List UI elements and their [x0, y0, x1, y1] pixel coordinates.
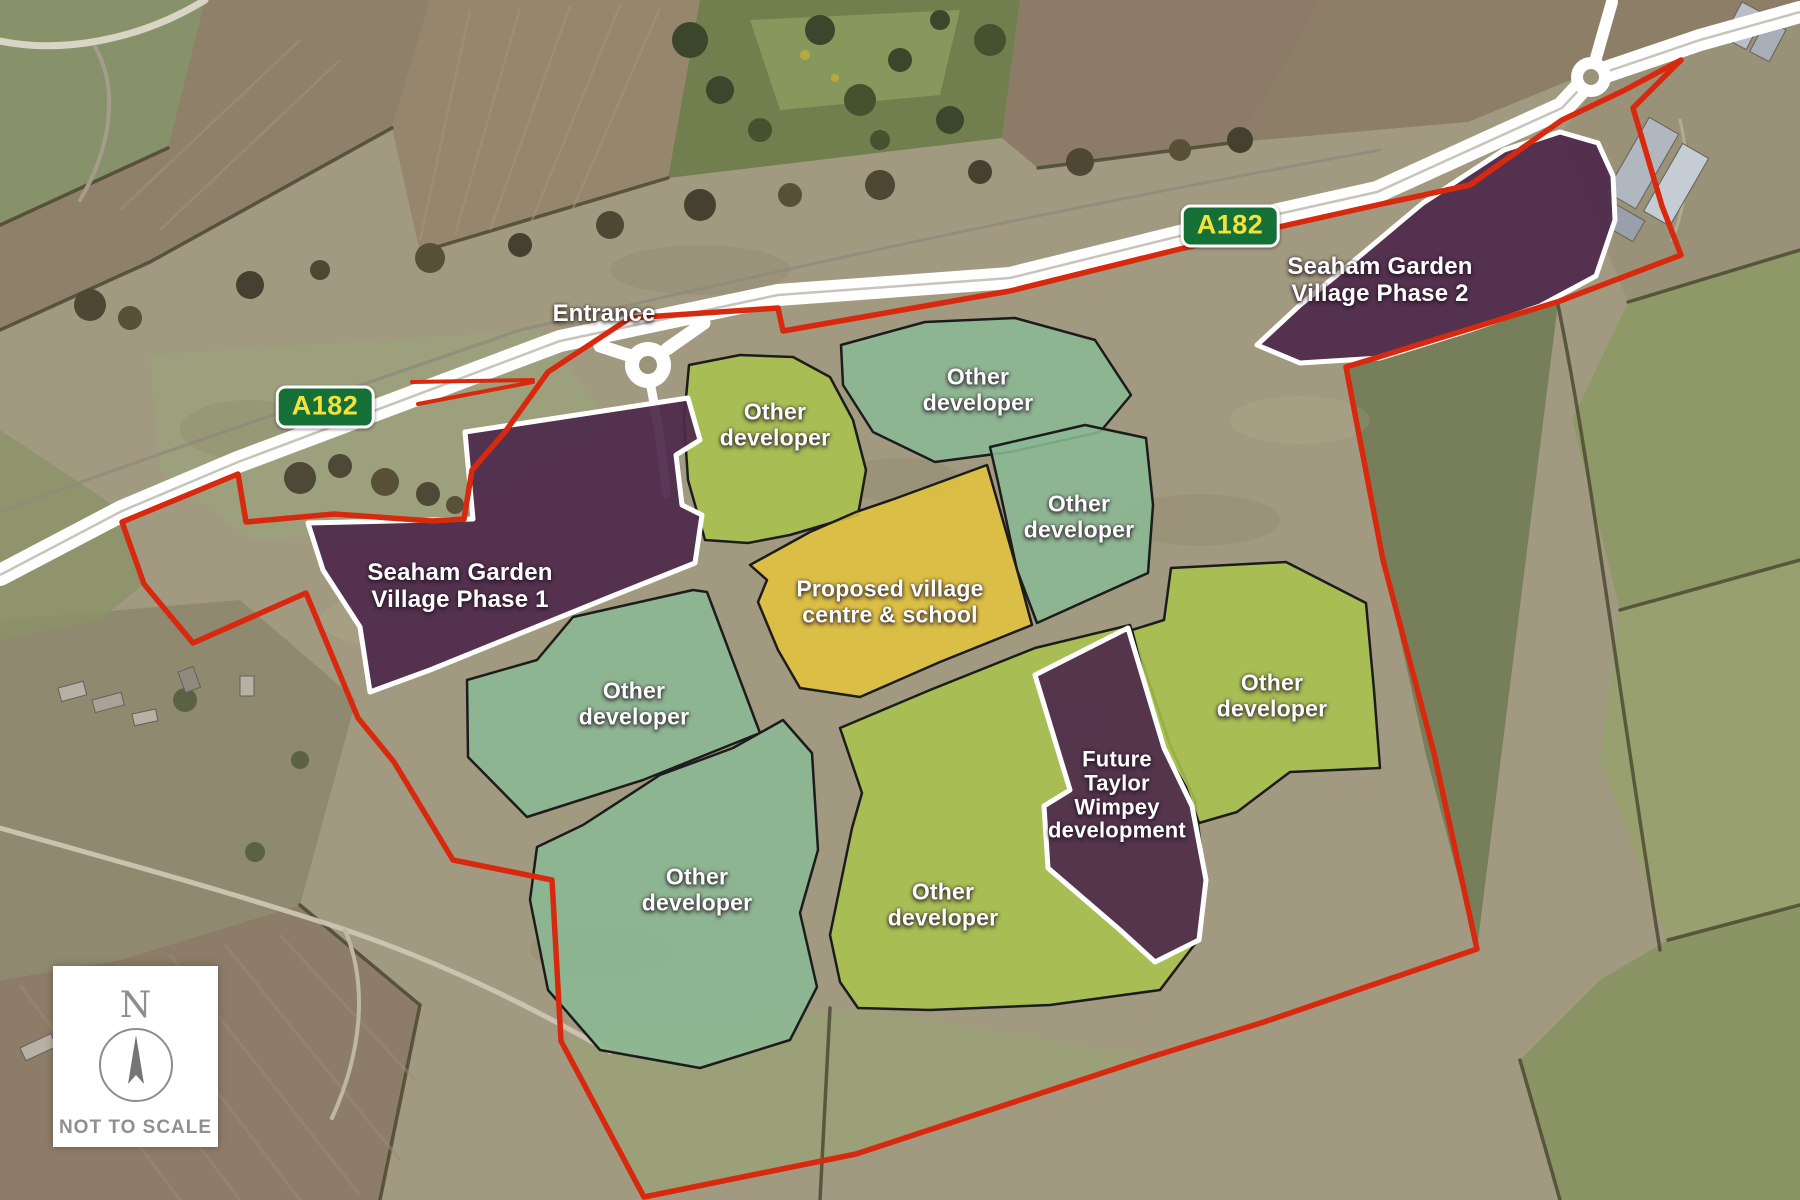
- aerial-map-canvas: [0, 0, 1800, 1200]
- site-plan-map: A182 A182 Entrance Seaham Garden Village…: [0, 0, 1800, 1200]
